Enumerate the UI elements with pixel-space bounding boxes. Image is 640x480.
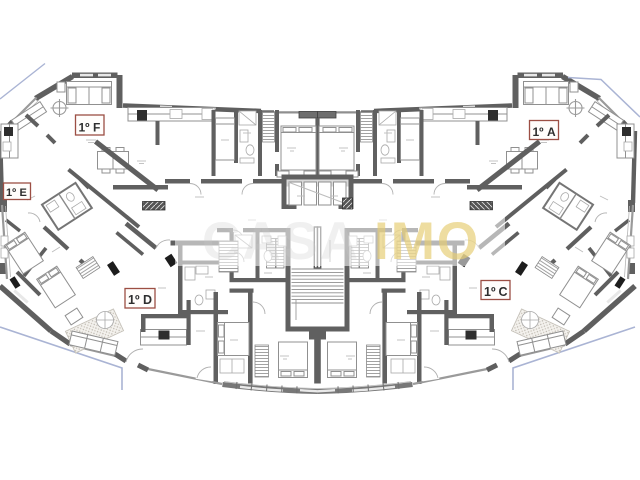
svg-text:F: F bbox=[93, 121, 100, 135]
svg-text:1º: 1º bbox=[533, 125, 545, 139]
svg-text:C: C bbox=[499, 285, 508, 299]
svg-text:E: E bbox=[20, 187, 27, 199]
svg-text:IMO: IMO bbox=[374, 212, 480, 271]
svg-text:1º: 1º bbox=[6, 187, 16, 199]
svg-text:1º: 1º bbox=[128, 293, 140, 307]
svg-text:CASA: CASA bbox=[202, 212, 360, 271]
svg-text:A: A bbox=[547, 125, 556, 139]
svg-text:1º: 1º bbox=[484, 285, 496, 299]
svg-text:1º: 1º bbox=[79, 121, 91, 135]
svg-text:D: D bbox=[143, 293, 152, 307]
